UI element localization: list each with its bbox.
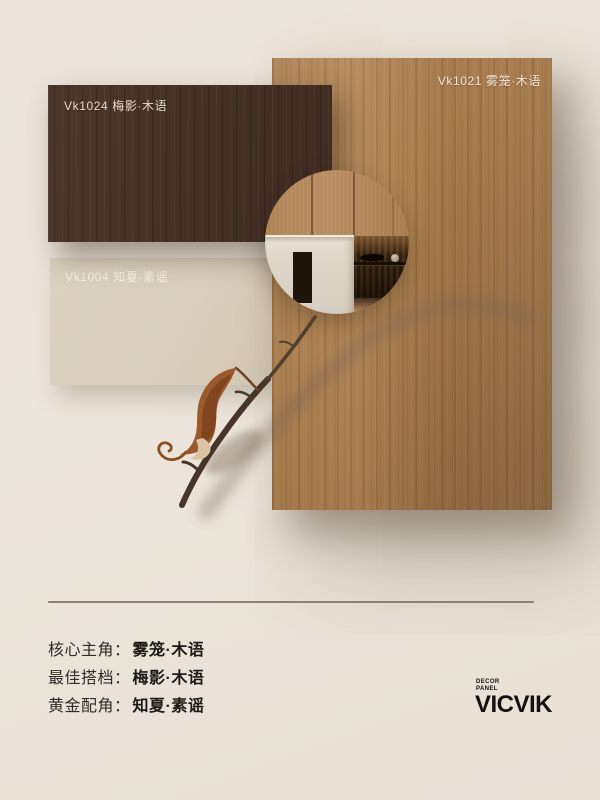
pairing-row-primary: 核心主角：雾笼·木语 <box>48 642 204 660</box>
inset-door-seam <box>353 170 355 236</box>
beige-panel-code-label: Vk1004 知夏·素谣 <box>65 268 168 285</box>
pairing-value: 梅影·木语 <box>133 670 205 687</box>
pairing-label: 核心主角： <box>48 642 131 659</box>
inset-decor-object <box>360 254 384 261</box>
pairing-value: 知夏·素谣 <box>133 698 205 715</box>
inset-door-seam <box>392 170 394 240</box>
footer-divider-line <box>48 601 534 603</box>
cabinet-interior-photo-inset <box>265 170 409 314</box>
pairing-row-partner: 最佳搭档：梅影·木语 <box>48 670 204 688</box>
inset-cabinet-opening <box>293 252 312 303</box>
dark-panel-code-label: Vk1024 梅影·木语 <box>64 97 167 114</box>
brand-logo: DECOR PANEL VICVIK <box>475 679 552 717</box>
inset-round-vase <box>391 254 399 262</box>
pairing-row-accent: 黄金配角：知夏·素谣 <box>48 698 204 716</box>
pairing-info-list: 核心主角：雾笼·木语 最佳搭档：梅影·木语 黄金配角：知夏·素谣 <box>48 642 204 716</box>
brand-name: VICVIK <box>475 693 552 717</box>
pairing-label: 最佳搭档： <box>48 670 131 687</box>
inset-door-seam <box>311 170 313 236</box>
inset-display-niche <box>354 236 409 298</box>
inset-shelf <box>354 262 409 265</box>
beige-sample-panel: Vk1004 知夏·素谣 <box>50 258 272 385</box>
material-poster: Vk1004 知夏·素谣 Vk1021 雾笼·木语 Vk1024 梅影·木语 <box>0 0 600 800</box>
wood-panel-code-label: Vk1021 雾笼·木语 <box>438 72 541 89</box>
pairing-label: 黄金配角： <box>48 698 131 715</box>
pairing-value: 雾笼·木语 <box>133 642 205 659</box>
inset-niche-shadow <box>354 298 409 312</box>
